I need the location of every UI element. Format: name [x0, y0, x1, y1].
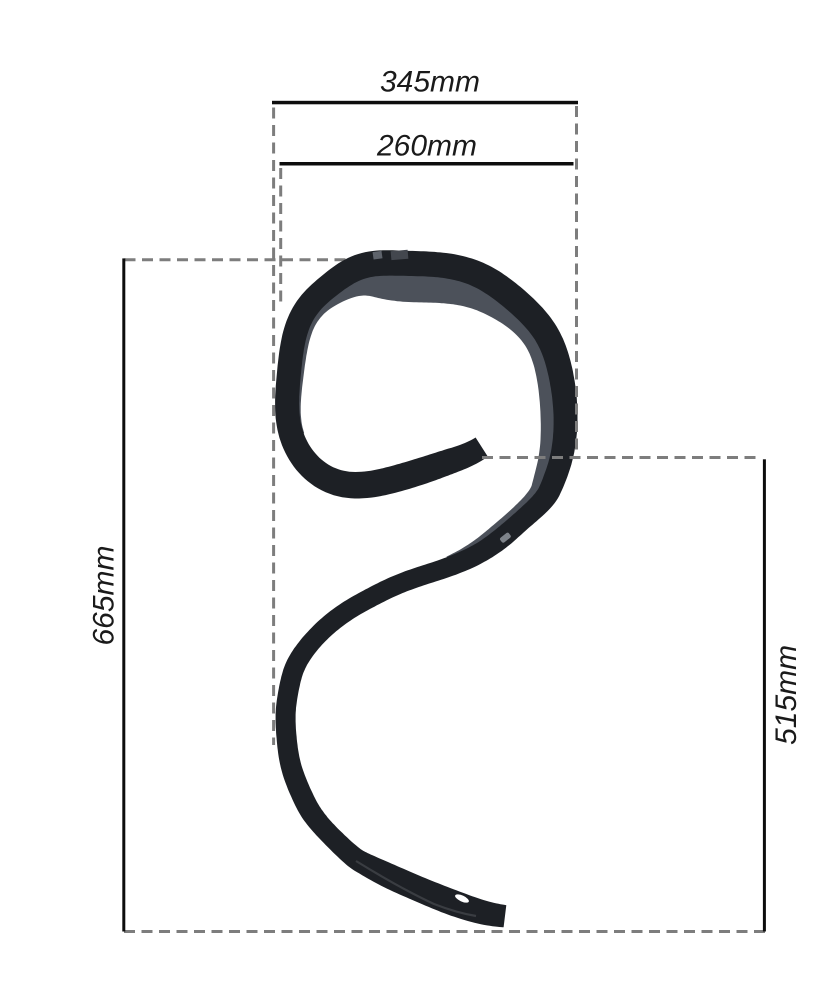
- svg-text:345mm: 345mm: [380, 66, 480, 99]
- svg-text:515mm: 515mm: [770, 645, 803, 745]
- svg-text:665mm: 665mm: [87, 545, 120, 645]
- svg-text:260mm: 260mm: [376, 130, 477, 163]
